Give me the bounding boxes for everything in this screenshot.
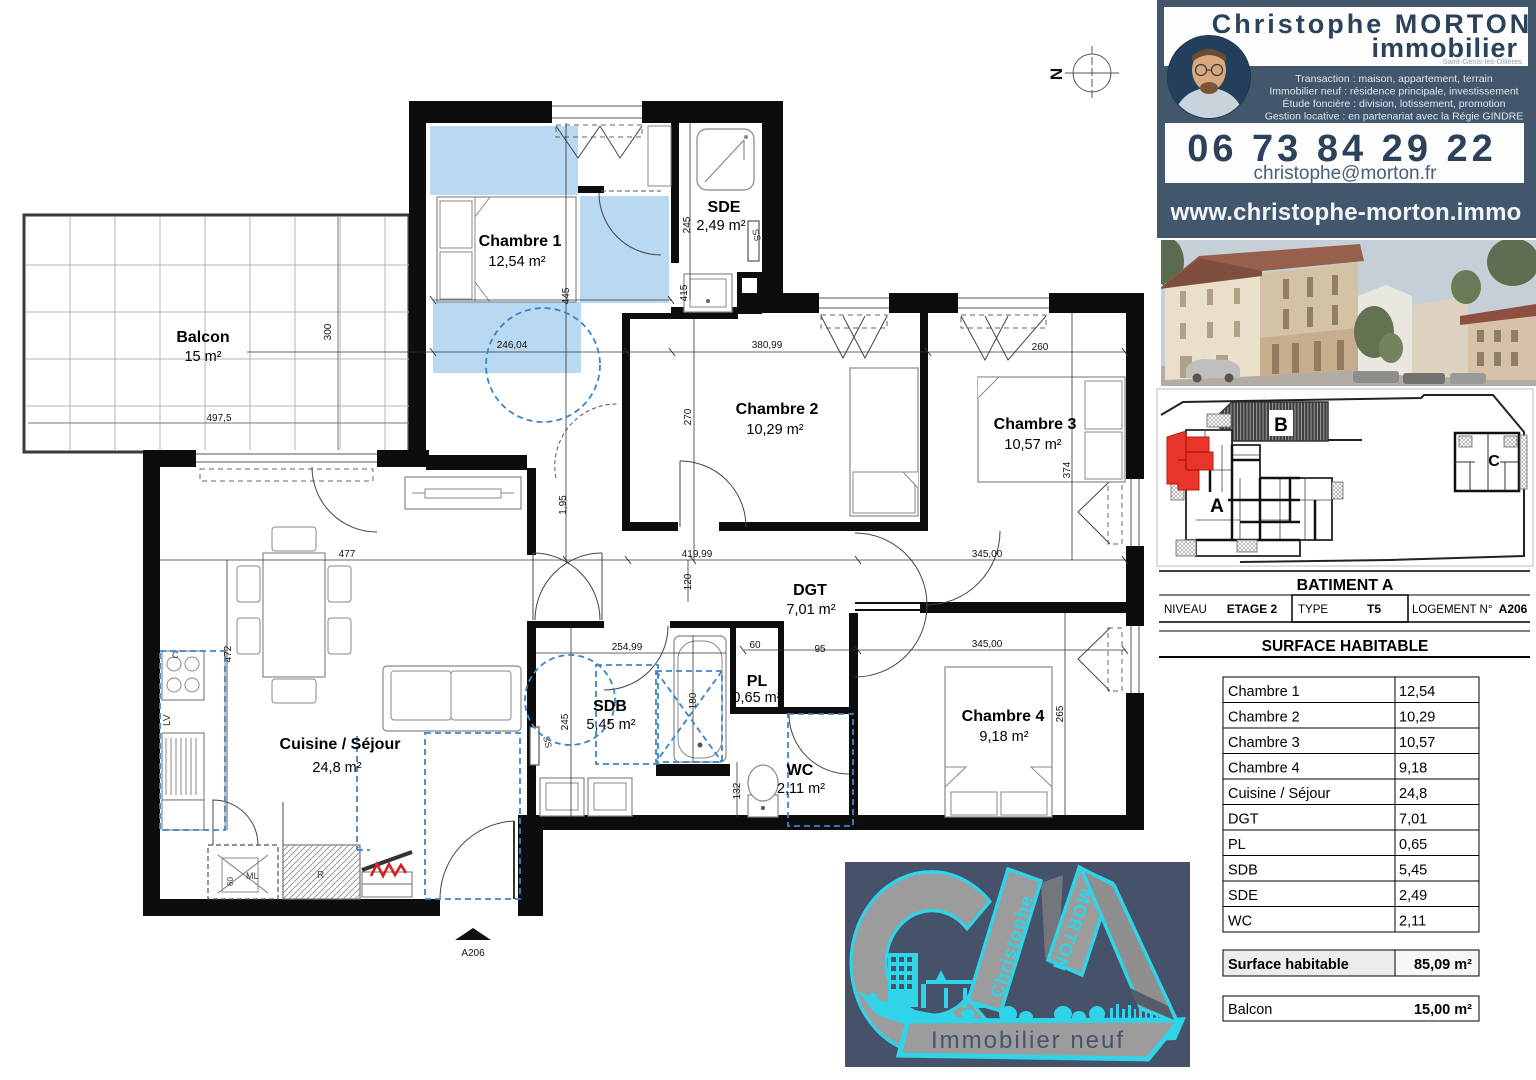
svg-text:245: 245 [682, 216, 693, 233]
svg-text:Balcon: Balcon [1228, 1002, 1272, 1018]
svg-text:DGT: DGT [793, 582, 827, 599]
svg-text:345,00: 345,00 [972, 639, 1003, 650]
svg-text:PL: PL [1228, 837, 1246, 853]
svg-text:TYPE: TYPE [1298, 604, 1328, 616]
svg-text:Chambre 3: Chambre 3 [994, 416, 1077, 433]
svg-text:SDB: SDB [593, 698, 627, 715]
svg-text:Chambre 1: Chambre 1 [479, 233, 562, 250]
svg-text:Saint-Genis-les-Ollières: Saint-Genis-les-Ollières [1443, 57, 1522, 66]
svg-text:5,45 m²: 5,45 m² [586, 717, 635, 733]
svg-text:132: 132 [732, 782, 743, 799]
svg-text:15 m²: 15 m² [184, 349, 221, 365]
svg-text:10,57 m²: 10,57 m² [1004, 437, 1061, 453]
svg-text:85,09 m²: 85,09 m² [1414, 957, 1472, 973]
svg-text:ETAGE 2: ETAGE 2 [1227, 602, 1278, 616]
svg-text:120: 120 [683, 573, 694, 590]
svg-text:A206: A206 [1499, 602, 1528, 616]
svg-text:SURFACE HABITABLE: SURFACE HABITABLE [1262, 638, 1429, 655]
svg-text:2,49: 2,49 [1399, 888, 1427, 904]
svg-text:2,49 m²: 2,49 m² [696, 218, 745, 234]
svg-text:12,54 m²: 12,54 m² [488, 254, 545, 270]
svg-text:A206: A206 [461, 948, 485, 959]
svg-text:180: 180 [688, 692, 699, 709]
svg-text:T5: T5 [1367, 602, 1381, 616]
svg-text:Chambre 2: Chambre 2 [736, 401, 819, 418]
svg-text:Transaction : maison, appartem: Transaction : maison, appartement, terra… [1295, 73, 1493, 85]
svg-text:Balcon: Balcon [176, 329, 229, 346]
svg-text:BATIMENT A: BATIMENT A [1297, 577, 1394, 594]
svg-text:254,99: 254,99 [612, 642, 643, 653]
svg-text:5,45: 5,45 [1399, 863, 1427, 879]
svg-text:0,65 m²: 0,65 m² [732, 690, 781, 706]
svg-text:2,11 m²: 2,11 m² [777, 781, 825, 797]
svg-text:PL: PL [747, 673, 768, 690]
svg-text:60: 60 [226, 877, 235, 886]
svg-text:300: 300 [323, 323, 334, 340]
svg-text:R: R [317, 870, 324, 881]
svg-text:24,8: 24,8 [1399, 786, 1427, 802]
svg-text:Surface habitable: Surface habitable [1228, 957, 1349, 973]
svg-text:A: A [1210, 496, 1224, 517]
svg-text:12,54: 12,54 [1399, 684, 1435, 700]
svg-text:Étude foncière : division, lot: Étude foncière : division, lotissement, … [1283, 97, 1506, 110]
svg-text:Chambre 3: Chambre 3 [1228, 735, 1300, 751]
svg-text:Immobilier neuf: Immobilier neuf [931, 1027, 1125, 1054]
svg-text:24,8 m²: 24,8 m² [312, 760, 361, 776]
svg-text:Chambre 4: Chambre 4 [1228, 761, 1300, 777]
svg-text:Chambre 1: Chambre 1 [1228, 684, 1300, 700]
svg-text:LOGEMENT N°: LOGEMENT N° [1412, 604, 1492, 616]
svg-text:7,01: 7,01 [1399, 812, 1427, 828]
svg-text:10,57: 10,57 [1399, 735, 1435, 751]
svg-text:ML: ML [246, 871, 259, 881]
svg-text:265: 265 [1055, 705, 1066, 722]
svg-text:Chambre 2: Chambre 2 [1228, 710, 1300, 726]
svg-text:10,29: 10,29 [1399, 710, 1435, 726]
svg-text:WC: WC [1228, 914, 1252, 930]
svg-text:415: 415 [679, 284, 690, 301]
svg-text:445: 445 [561, 287, 572, 304]
svg-text:374: 374 [1062, 461, 1073, 478]
svg-text:Cuisine / Séjour: Cuisine / Séjour [1228, 786, 1331, 802]
svg-text:DGT: DGT [1228, 812, 1259, 828]
svg-text:380,99: 380,99 [752, 340, 783, 351]
svg-text:SS: SS [541, 735, 554, 749]
svg-text:www.christophe-morton.immo: www.christophe-morton.immo [1170, 199, 1522, 226]
svg-text:NIVEAU: NIVEAU [1164, 604, 1207, 616]
svg-text:477: 477 [339, 549, 356, 560]
svg-text:245: 245 [560, 713, 571, 730]
svg-text:C: C [1488, 453, 1500, 470]
svg-text:SDB: SDB [1228, 863, 1258, 879]
svg-text:246,04: 246,04 [497, 340, 528, 351]
svg-text:SDE: SDE [708, 199, 741, 216]
svg-text:60: 60 [749, 640, 761, 651]
svg-text:0,65: 0,65 [1399, 837, 1427, 853]
svg-text:2,11: 2,11 [1399, 914, 1426, 930]
svg-text:7,01 m²: 7,01 m² [786, 602, 835, 618]
svg-text:260: 260 [1032, 342, 1049, 353]
svg-text:SDE: SDE [1228, 888, 1258, 904]
svg-text:WC: WC [787, 762, 814, 779]
svg-text:497,5: 497,5 [206, 413, 231, 424]
svg-text:10,29 m²: 10,29 m² [746, 422, 803, 438]
svg-text:Chambre 4: Chambre 4 [962, 708, 1045, 725]
svg-text:christophe@morton.fr: christophe@morton.fr [1254, 163, 1438, 184]
svg-text:15,00 m²: 15,00 m² [1414, 1002, 1472, 1018]
svg-text:Immobilier neuf : résidence pr: Immobilier neuf : résidence principale, … [1269, 86, 1518, 98]
svg-text:Gestion locative : en partenar: Gestion locative : en partenariat avec l… [1265, 111, 1524, 123]
svg-text:9,18 m²: 9,18 m² [979, 729, 1028, 745]
svg-text:LV: LV [162, 714, 173, 726]
svg-text:419,99: 419,99 [682, 549, 713, 560]
svg-text:345,00: 345,00 [972, 549, 1003, 560]
svg-text:9,18: 9,18 [1399, 761, 1427, 777]
svg-text:1,95: 1,95 [558, 495, 569, 515]
svg-text:Cuisine / Séjour: Cuisine / Séjour [280, 736, 401, 753]
svg-text:B: B [1274, 415, 1288, 436]
svg-text:95: 95 [814, 644, 826, 655]
svg-text:N: N [1047, 68, 1066, 80]
svg-text:270: 270 [683, 408, 694, 425]
